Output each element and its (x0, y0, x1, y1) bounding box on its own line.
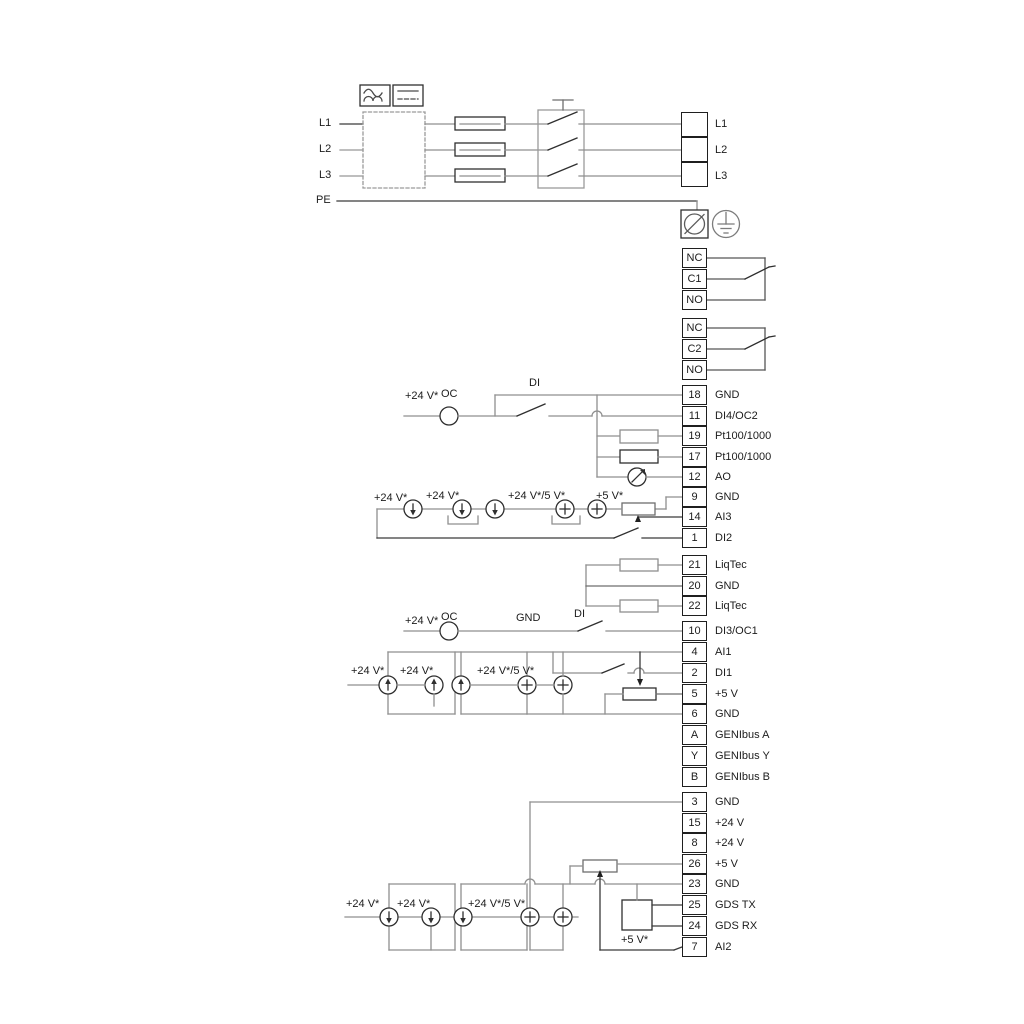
terminal-23: 23 (682, 874, 707, 894)
terminal-4: 4 (682, 642, 707, 662)
terminal-label: DI1 (715, 667, 732, 680)
wiper-arrow-icon (637, 679, 643, 686)
supply-label: +5 V* (621, 934, 648, 946)
terminal-label: LiqTec (715, 559, 747, 572)
terminal-9: 9 (682, 487, 707, 507)
relay1-c1: C1 (682, 269, 707, 289)
di-switch-icon (578, 621, 602, 631)
terminal-label: DI2 (715, 532, 732, 545)
terminal-l1-out (681, 112, 708, 137)
terminal-24: 24 (682, 916, 707, 936)
terminal-label: GND (715, 389, 739, 402)
terminal-label: AO (715, 471, 731, 484)
di-label: DI (529, 377, 540, 389)
potentiometer-icon (623, 688, 656, 700)
wiring-svg (0, 0, 1024, 1024)
terminal-11: 11 (682, 406, 707, 426)
di-switch-icon (602, 664, 624, 673)
terminal-l2-out (681, 137, 708, 162)
terminal-label: GENIbus B (715, 771, 770, 784)
di-switch-icon (614, 528, 638, 538)
terminal-label: GND (715, 708, 739, 721)
terminal-label: Pt100/1000 (715, 430, 771, 443)
terminal-1: 1 (682, 528, 707, 548)
di-label: DI (574, 608, 585, 620)
terminal-label: GENIbus A (715, 729, 769, 742)
relay1-nc: NC (682, 248, 707, 268)
terminal-label: GND (715, 878, 739, 891)
supply-label: +24 V* (400, 665, 433, 677)
block-c-wiring (345, 802, 682, 950)
terminal-3: 3 (682, 792, 707, 812)
terminal-label: GND (715, 796, 739, 809)
terminal-15: 15 (682, 813, 707, 833)
terminal-genibus-a: A (682, 725, 707, 745)
wiper-arrow-icon (635, 515, 641, 522)
relay2-no: NO (682, 360, 707, 380)
potentiometer-icon (622, 503, 655, 515)
terminal-19: 19 (682, 426, 707, 446)
terminal-label: L3 (715, 170, 727, 183)
pt100-resistor-icon (620, 430, 658, 443)
supply-label: +24 V* (405, 390, 438, 402)
terminal-label: AI1 (715, 646, 732, 659)
input-label-l3: L3 (319, 169, 331, 181)
supply-label: +24 V*/5 V* (468, 898, 525, 910)
terminal-6: 6 (682, 704, 707, 724)
liqtec-sensor-icon (620, 600, 658, 612)
terminal-genibus-b: B (682, 767, 707, 787)
dc-symbol-icon (393, 85, 423, 106)
terminal-label: LiqTec (715, 600, 747, 613)
terminal-label: DI4/OC2 (715, 410, 758, 423)
terminal-5: 5 (682, 684, 707, 704)
terminal-label: +5 V (715, 858, 738, 871)
supply-label: +24 V* (351, 665, 384, 677)
supply-label: +24 V* (374, 492, 407, 504)
terminal-25: 25 (682, 895, 707, 915)
terminal-l3-out (681, 162, 708, 187)
terminal-22: 22 (682, 596, 707, 616)
pt100-resistor-icon (620, 450, 658, 463)
terminal-label: L1 (715, 118, 727, 131)
liqtec-wiring (586, 559, 682, 612)
gds-sensor-box (622, 900, 652, 930)
analog-output-meter-icon (628, 468, 646, 486)
terminal-label: GND (715, 491, 739, 504)
terminal-label: +24 V (715, 817, 744, 830)
relay2-c2: C2 (682, 339, 707, 359)
relay1-contact-icon (707, 258, 775, 300)
fuse-icons (455, 117, 505, 182)
relay1-no: NO (682, 290, 707, 310)
supply-label: +24 V* (426, 490, 459, 502)
terminal-8: 8 (682, 833, 707, 853)
oc-label: OC (441, 388, 458, 400)
liqtec-sensor-icon (620, 559, 658, 571)
terminal-label: DI3/OC1 (715, 625, 758, 638)
di-switch-icon (517, 404, 545, 416)
terminal-label: L2 (715, 144, 727, 157)
block-a-wiring (377, 395, 682, 538)
terminal-label: Pt100/1000 (715, 451, 771, 464)
terminal-10: 10 (682, 621, 707, 641)
terminal-26: 26 (682, 854, 707, 874)
supply-label: +5 V* (596, 490, 623, 502)
terminal-label: GDS TX (715, 899, 756, 912)
terminal-label: AI2 (715, 941, 732, 954)
supply-label: +24 V* (346, 898, 379, 910)
terminal-label: +5 V (715, 688, 738, 701)
supply-label: +24 V*/5 V* (477, 665, 534, 677)
terminal-label: GDS RX (715, 920, 757, 933)
wiring-diagram: L1 L2 L3 PE L1 L2 L3 NC C1 NO NC C2 NO 1… (0, 0, 1024, 1024)
terminal-2: 2 (682, 663, 707, 683)
input-label-l2: L2 (319, 143, 331, 155)
terminal-17: 17 (682, 447, 707, 467)
terminal-18: 18 (682, 385, 707, 405)
power-section (337, 85, 740, 238)
supply-label: +24 V*/5 V* (508, 490, 565, 502)
terminal-21: 21 (682, 555, 707, 575)
terminal-genibus-y: Y (682, 746, 707, 766)
relay2-nc: NC (682, 318, 707, 338)
terminal-12: 12 (682, 467, 707, 487)
terminal-14: 14 (682, 507, 707, 527)
oc-collector-icon (440, 622, 458, 640)
terminal-7: 7 (682, 937, 707, 957)
screw-terminal-icon (681, 210, 708, 238)
terminal-20: 20 (682, 576, 707, 596)
terminal-label: GENIbus Y (715, 750, 770, 763)
terminal-label: AI3 (715, 511, 732, 524)
earth-icon (713, 211, 740, 238)
input-label-l1: L1 (319, 117, 331, 129)
supply-label: +24 V* (397, 898, 430, 910)
input-label-pe: PE (316, 194, 331, 206)
terminal-label: GND (715, 580, 739, 593)
oc-label: OC (441, 611, 458, 623)
main-switch-icon (538, 100, 584, 188)
oc-collector-icon (440, 407, 458, 425)
supply-label: +24 V* (405, 615, 438, 627)
relay2-contact-icon (707, 328, 775, 370)
converter-box (363, 112, 425, 188)
gnd-label: GND (516, 612, 540, 624)
terminal-label: +24 V (715, 837, 744, 850)
